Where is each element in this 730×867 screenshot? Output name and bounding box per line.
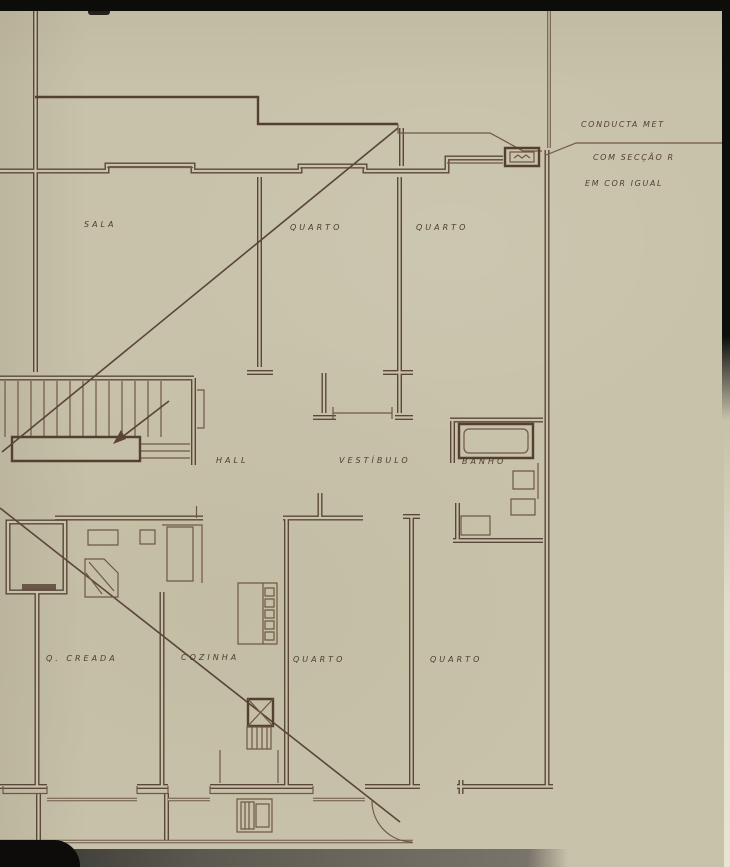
room-label-banho: BANHO <box>462 457 506 466</box>
room-label-quarto-top-2: QUARTO <box>416 223 468 232</box>
scanned-floorplan-sheet: SALA QUARTO QUARTO HALL VESTÍBULO BANHO … <box>0 0 730 867</box>
scan-edge-right <box>722 0 730 420</box>
stairs <box>5 381 204 461</box>
toilet-icon <box>511 499 535 515</box>
room-label-vestibulo: VESTÍBULO <box>339 456 411 465</box>
shower-icon <box>85 559 118 597</box>
stove-burners-icon <box>265 588 274 640</box>
wardrobe-rod <box>333 407 392 419</box>
diagonal-leader-line-upper <box>2 128 398 452</box>
floor-plan-drawing <box>0 0 730 867</box>
service-tub-icon <box>88 530 118 545</box>
room-label-hall: HALL <box>216 456 248 465</box>
scan-edge-corner <box>0 840 80 867</box>
scan-edge-top <box>0 0 730 11</box>
room-label-quarto-creada: Q. CREADA <box>46 654 118 663</box>
room-label-cozinha: COZINHA <box>181 653 239 662</box>
lightwell-sill <box>22 584 56 590</box>
bathroom-fixtures <box>459 424 538 535</box>
terrace-parapet-line <box>35 97 398 124</box>
annotation-line-2: COM SECÇÃO R <box>593 153 675 162</box>
room-label-quarto-top-1: QUARTO <box>290 223 342 232</box>
balcony-door-arc <box>372 801 412 842</box>
scan-edge-top-nub <box>88 11 110 15</box>
duct-x-icon <box>220 699 278 783</box>
room-label-quarto-bottom-2: QUARTO <box>430 655 482 664</box>
annotation-line-1: CONDUCTA MET <box>581 120 665 129</box>
wc-fixture <box>167 527 193 581</box>
room-label-quarto-bottom-1: QUARTO <box>293 655 345 664</box>
room-label-sala: SALA <box>84 220 116 229</box>
duct-below-wall <box>237 799 272 832</box>
diagonal-leader-line-lower <box>0 508 400 822</box>
paper-edge-right <box>724 430 730 867</box>
bidet-icon <box>461 516 490 535</box>
scan-edge-bottom <box>0 849 568 867</box>
kitchen-counter <box>238 583 277 644</box>
annotation-line-3: EM COR IGUAL <box>585 179 663 188</box>
sink-icon <box>513 471 534 489</box>
duct-hatch-icon <box>247 727 271 749</box>
